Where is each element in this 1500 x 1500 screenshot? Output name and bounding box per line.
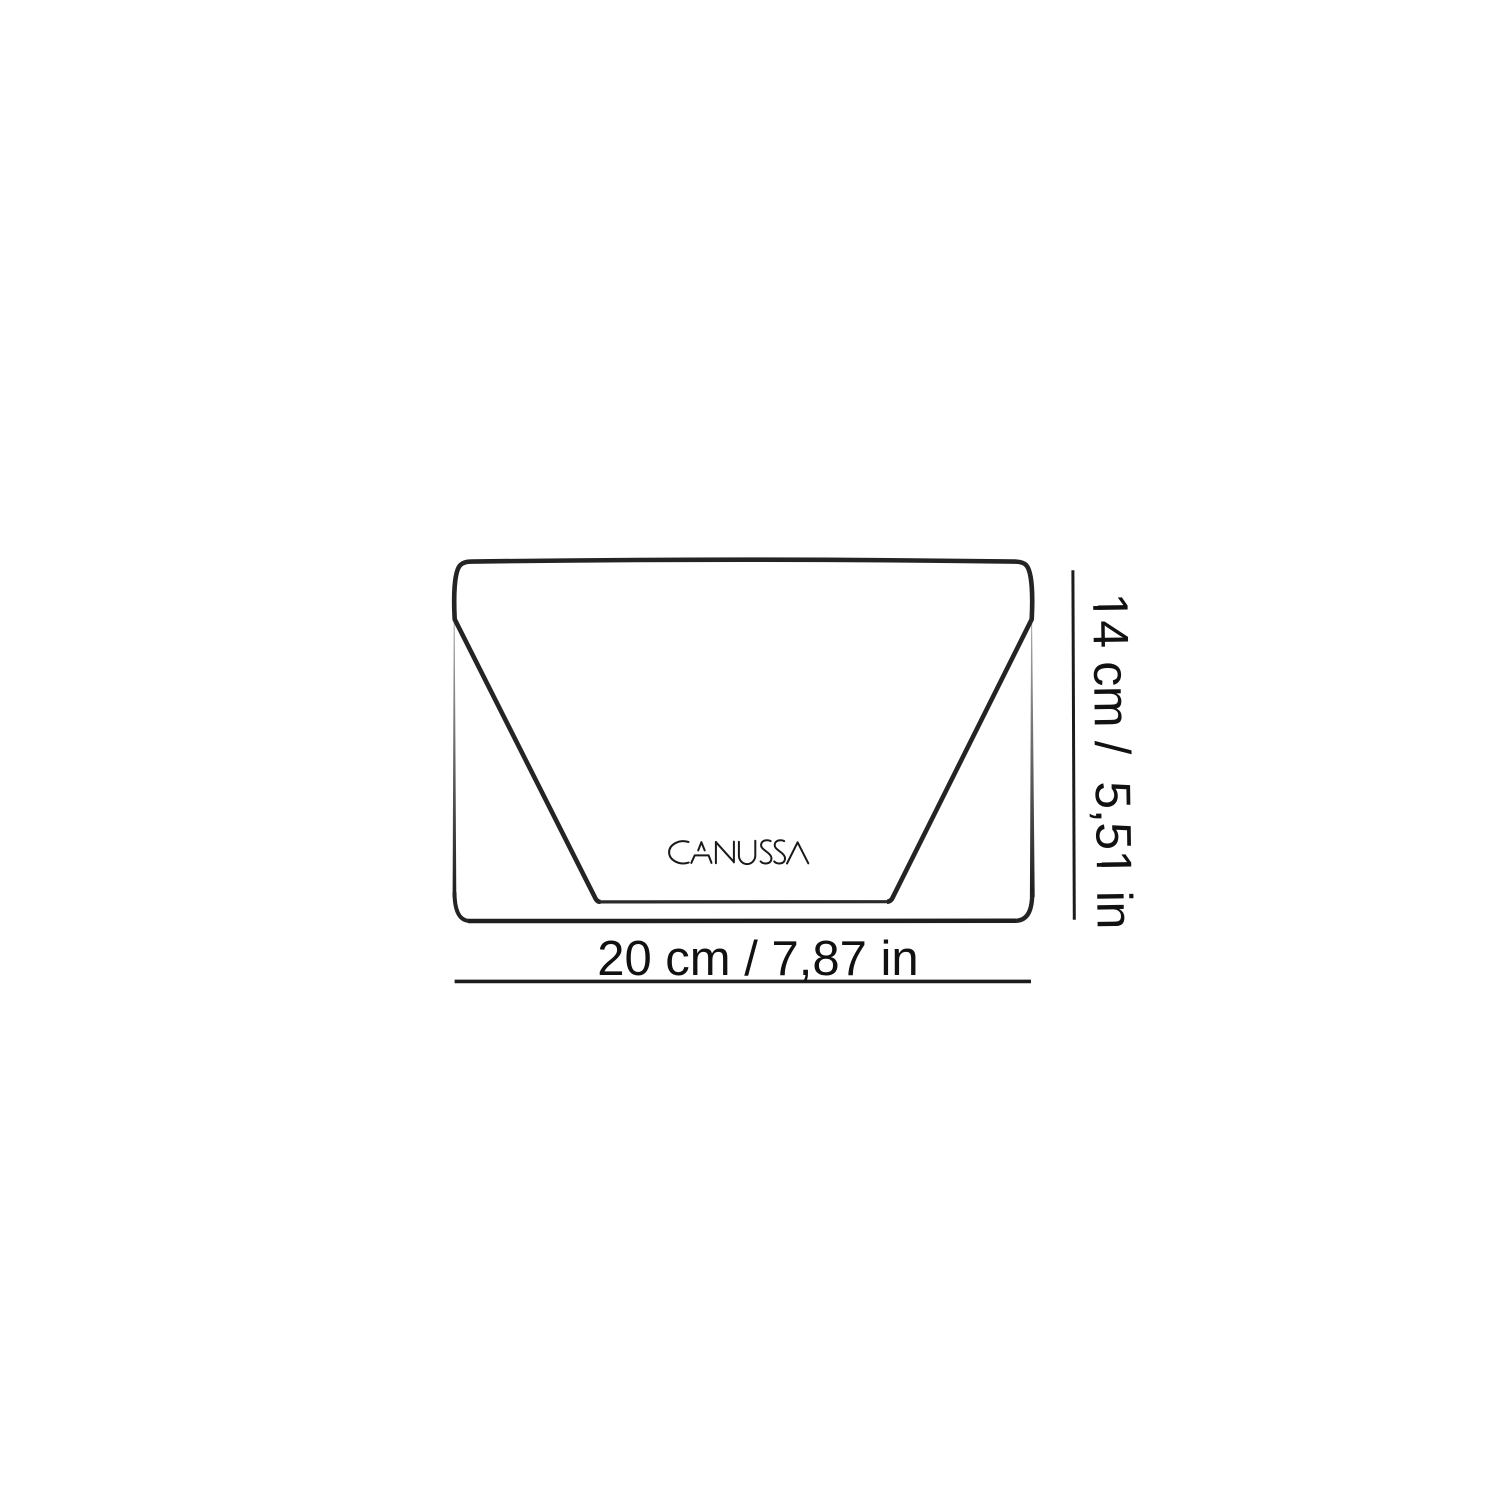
svg-text:14 cm / 5,51 in: 14 cm / 5,51 in (1082, 592, 1143, 929)
svg-text:20 cm / 7,87 in: 20 cm / 7,87 in (597, 932, 918, 986)
